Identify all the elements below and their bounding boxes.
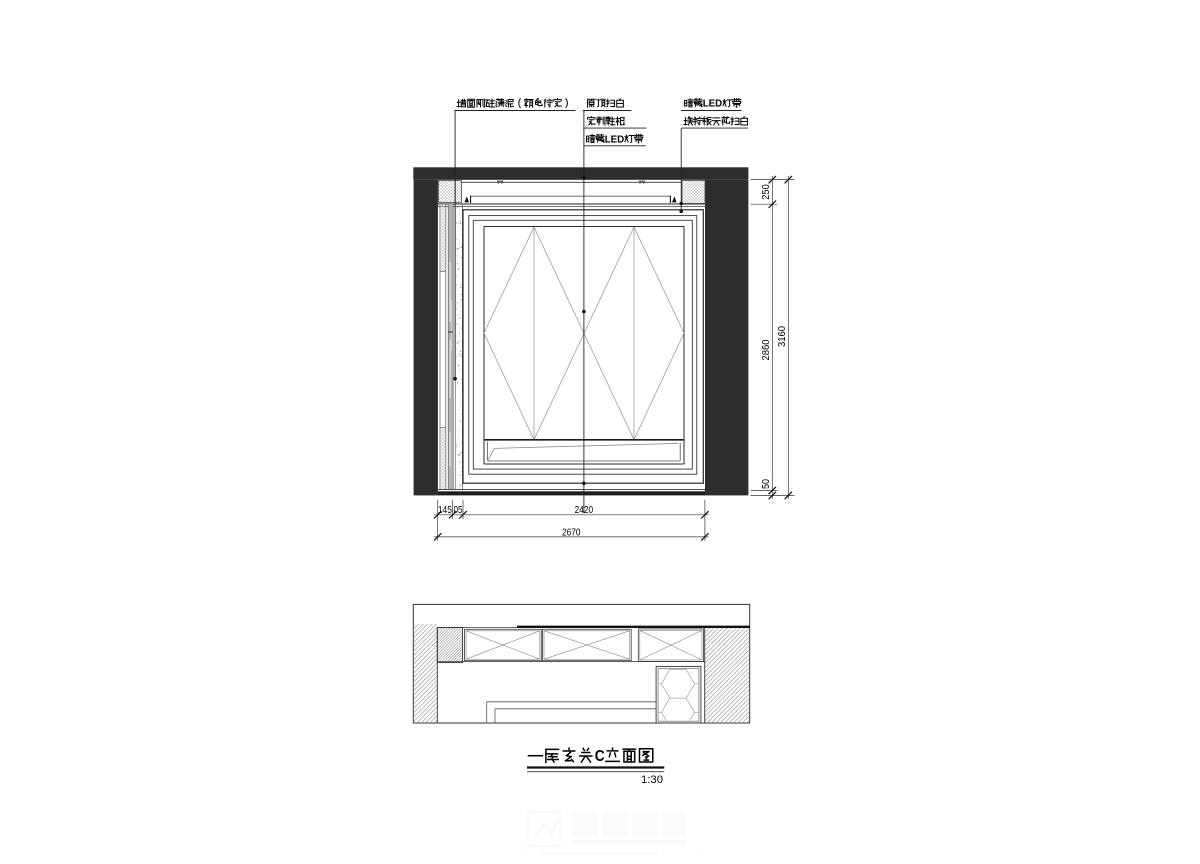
svg-text:LED: LED <box>703 98 723 110</box>
svg-text:LED: LED <box>605 133 625 145</box>
svg-text:C: C <box>595 748 605 765</box>
svg-text:145: 145 <box>438 504 452 516</box>
svg-text:2670: 2670 <box>562 526 581 538</box>
svg-text:2420: 2420 <box>575 504 594 516</box>
svg-text:05: 05 <box>454 504 463 516</box>
svg-text:3160: 3160 <box>776 326 788 347</box>
svg-text:50: 50 <box>760 479 772 489</box>
svg-text:1:30: 1:30 <box>641 774 663 786</box>
svg-text:250: 250 <box>760 184 772 200</box>
svg-text:2860: 2860 <box>760 339 772 360</box>
